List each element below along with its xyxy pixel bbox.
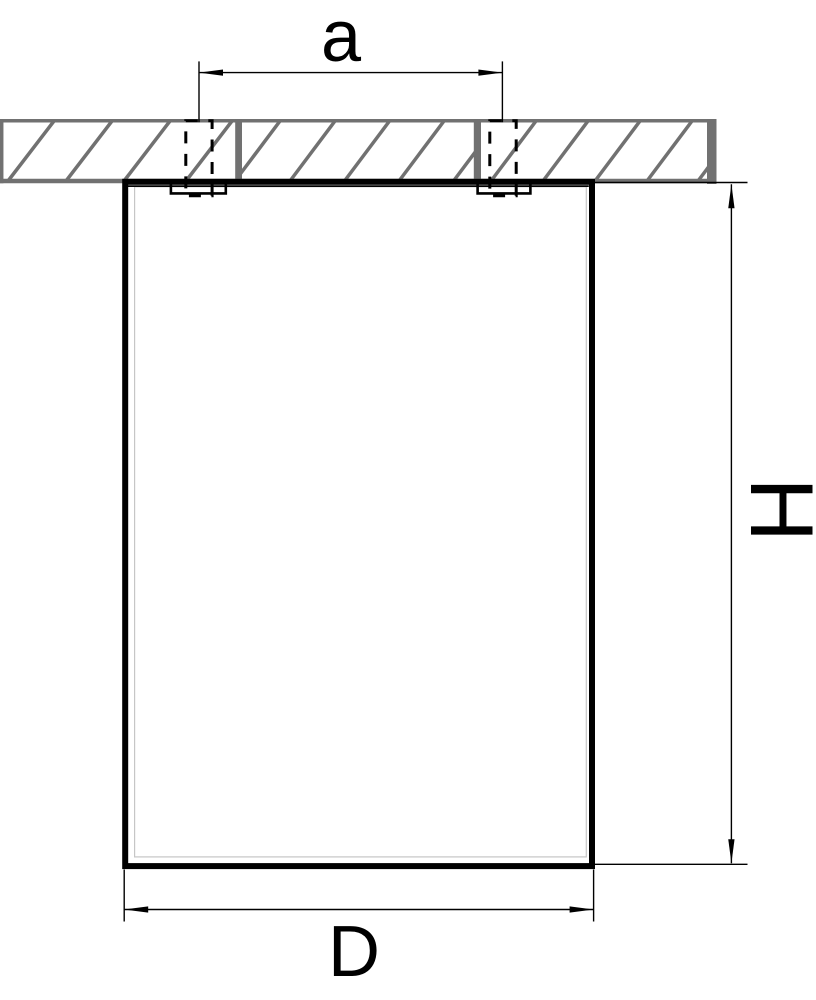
svg-text:H: H (732, 478, 816, 542)
svg-text:D: D (328, 912, 380, 992)
svg-text:a: a (321, 0, 362, 77)
